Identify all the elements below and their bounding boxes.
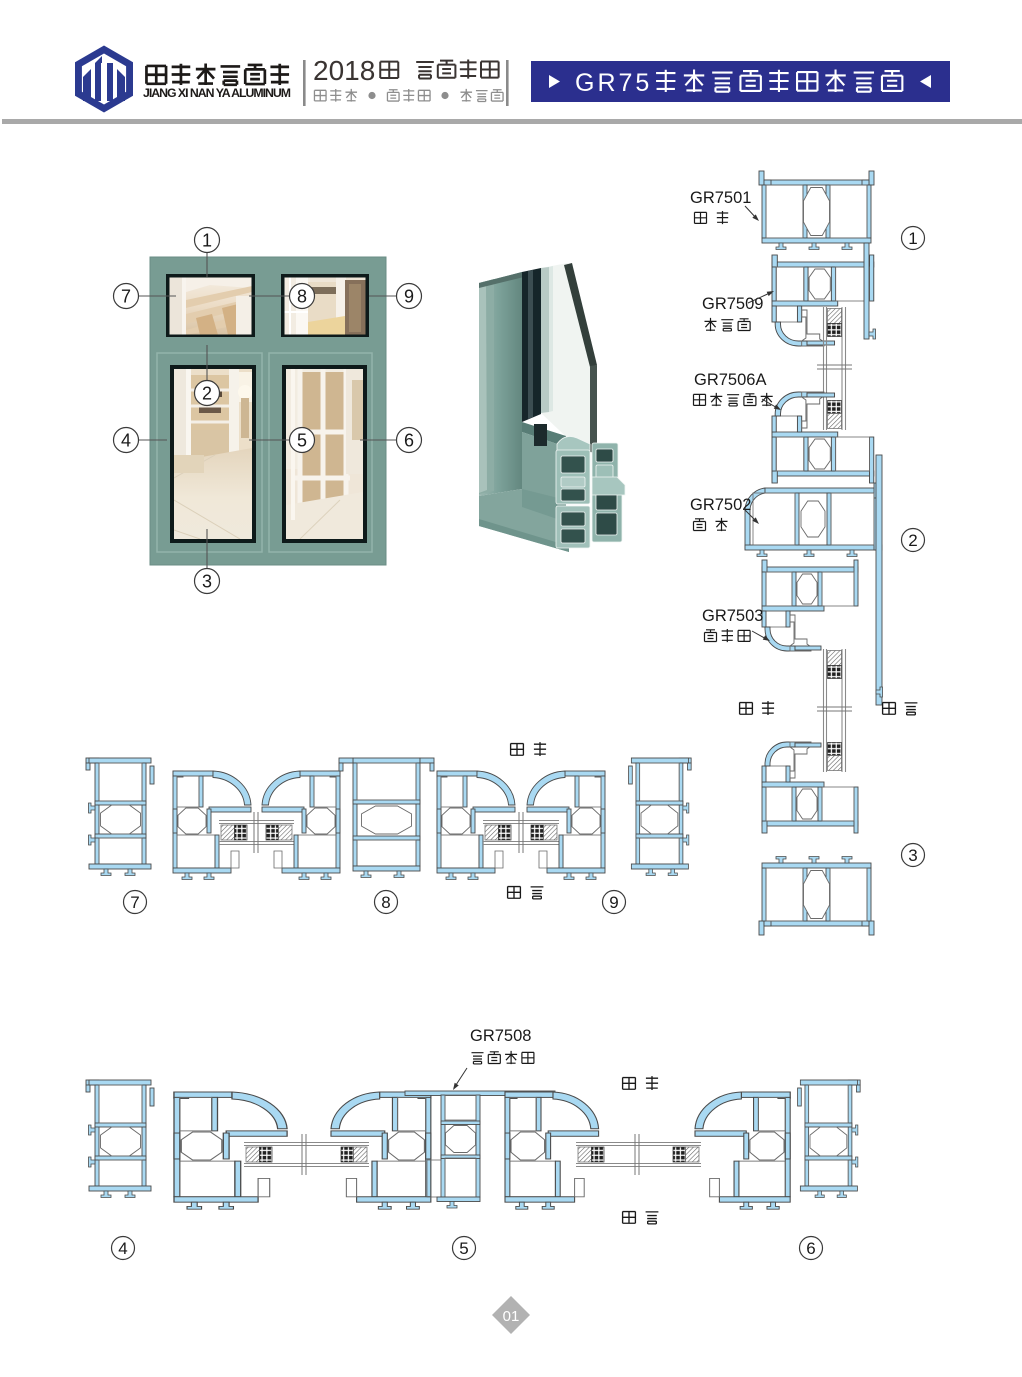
svg-text:3: 3 [202,572,212,592]
svg-text:5: 5 [297,431,307,451]
svg-text:GR7503: GR7503 [702,607,763,625]
svg-text:7: 7 [121,287,131,307]
svg-text:4: 4 [118,1239,127,1258]
svg-text:1: 1 [202,231,212,251]
svg-text:GR7508: GR7508 [470,1027,531,1045]
svg-text:GR7502: GR7502 [690,496,751,514]
svg-text:01: 01 [503,1308,520,1325]
svg-text:1: 1 [908,229,917,248]
svg-text:7: 7 [130,893,139,912]
svg-text:GR75: GR75 [575,69,652,97]
svg-text:4: 4 [121,431,131,451]
svg-text:9: 9 [609,893,618,912]
svg-text:6: 6 [806,1239,815,1258]
svg-text:5: 5 [459,1239,468,1258]
svg-text:3: 3 [908,846,917,865]
svg-text:GR7501: GR7501 [690,189,751,207]
svg-text:JIANG XI NAN YA ALUMINUM: JIANG XI NAN YA ALUMINUM [143,86,291,100]
svg-text:8: 8 [297,287,307,307]
svg-text:8: 8 [381,893,390,912]
svg-text:6: 6 [404,431,414,451]
svg-text:9: 9 [404,287,414,307]
svg-text:2: 2 [202,384,212,404]
svg-text:2018: 2018 [313,55,375,86]
svg-text:GR7509: GR7509 [702,295,763,313]
svg-text:2: 2 [908,531,917,550]
svg-text:GR7506A: GR7506A [694,371,766,389]
